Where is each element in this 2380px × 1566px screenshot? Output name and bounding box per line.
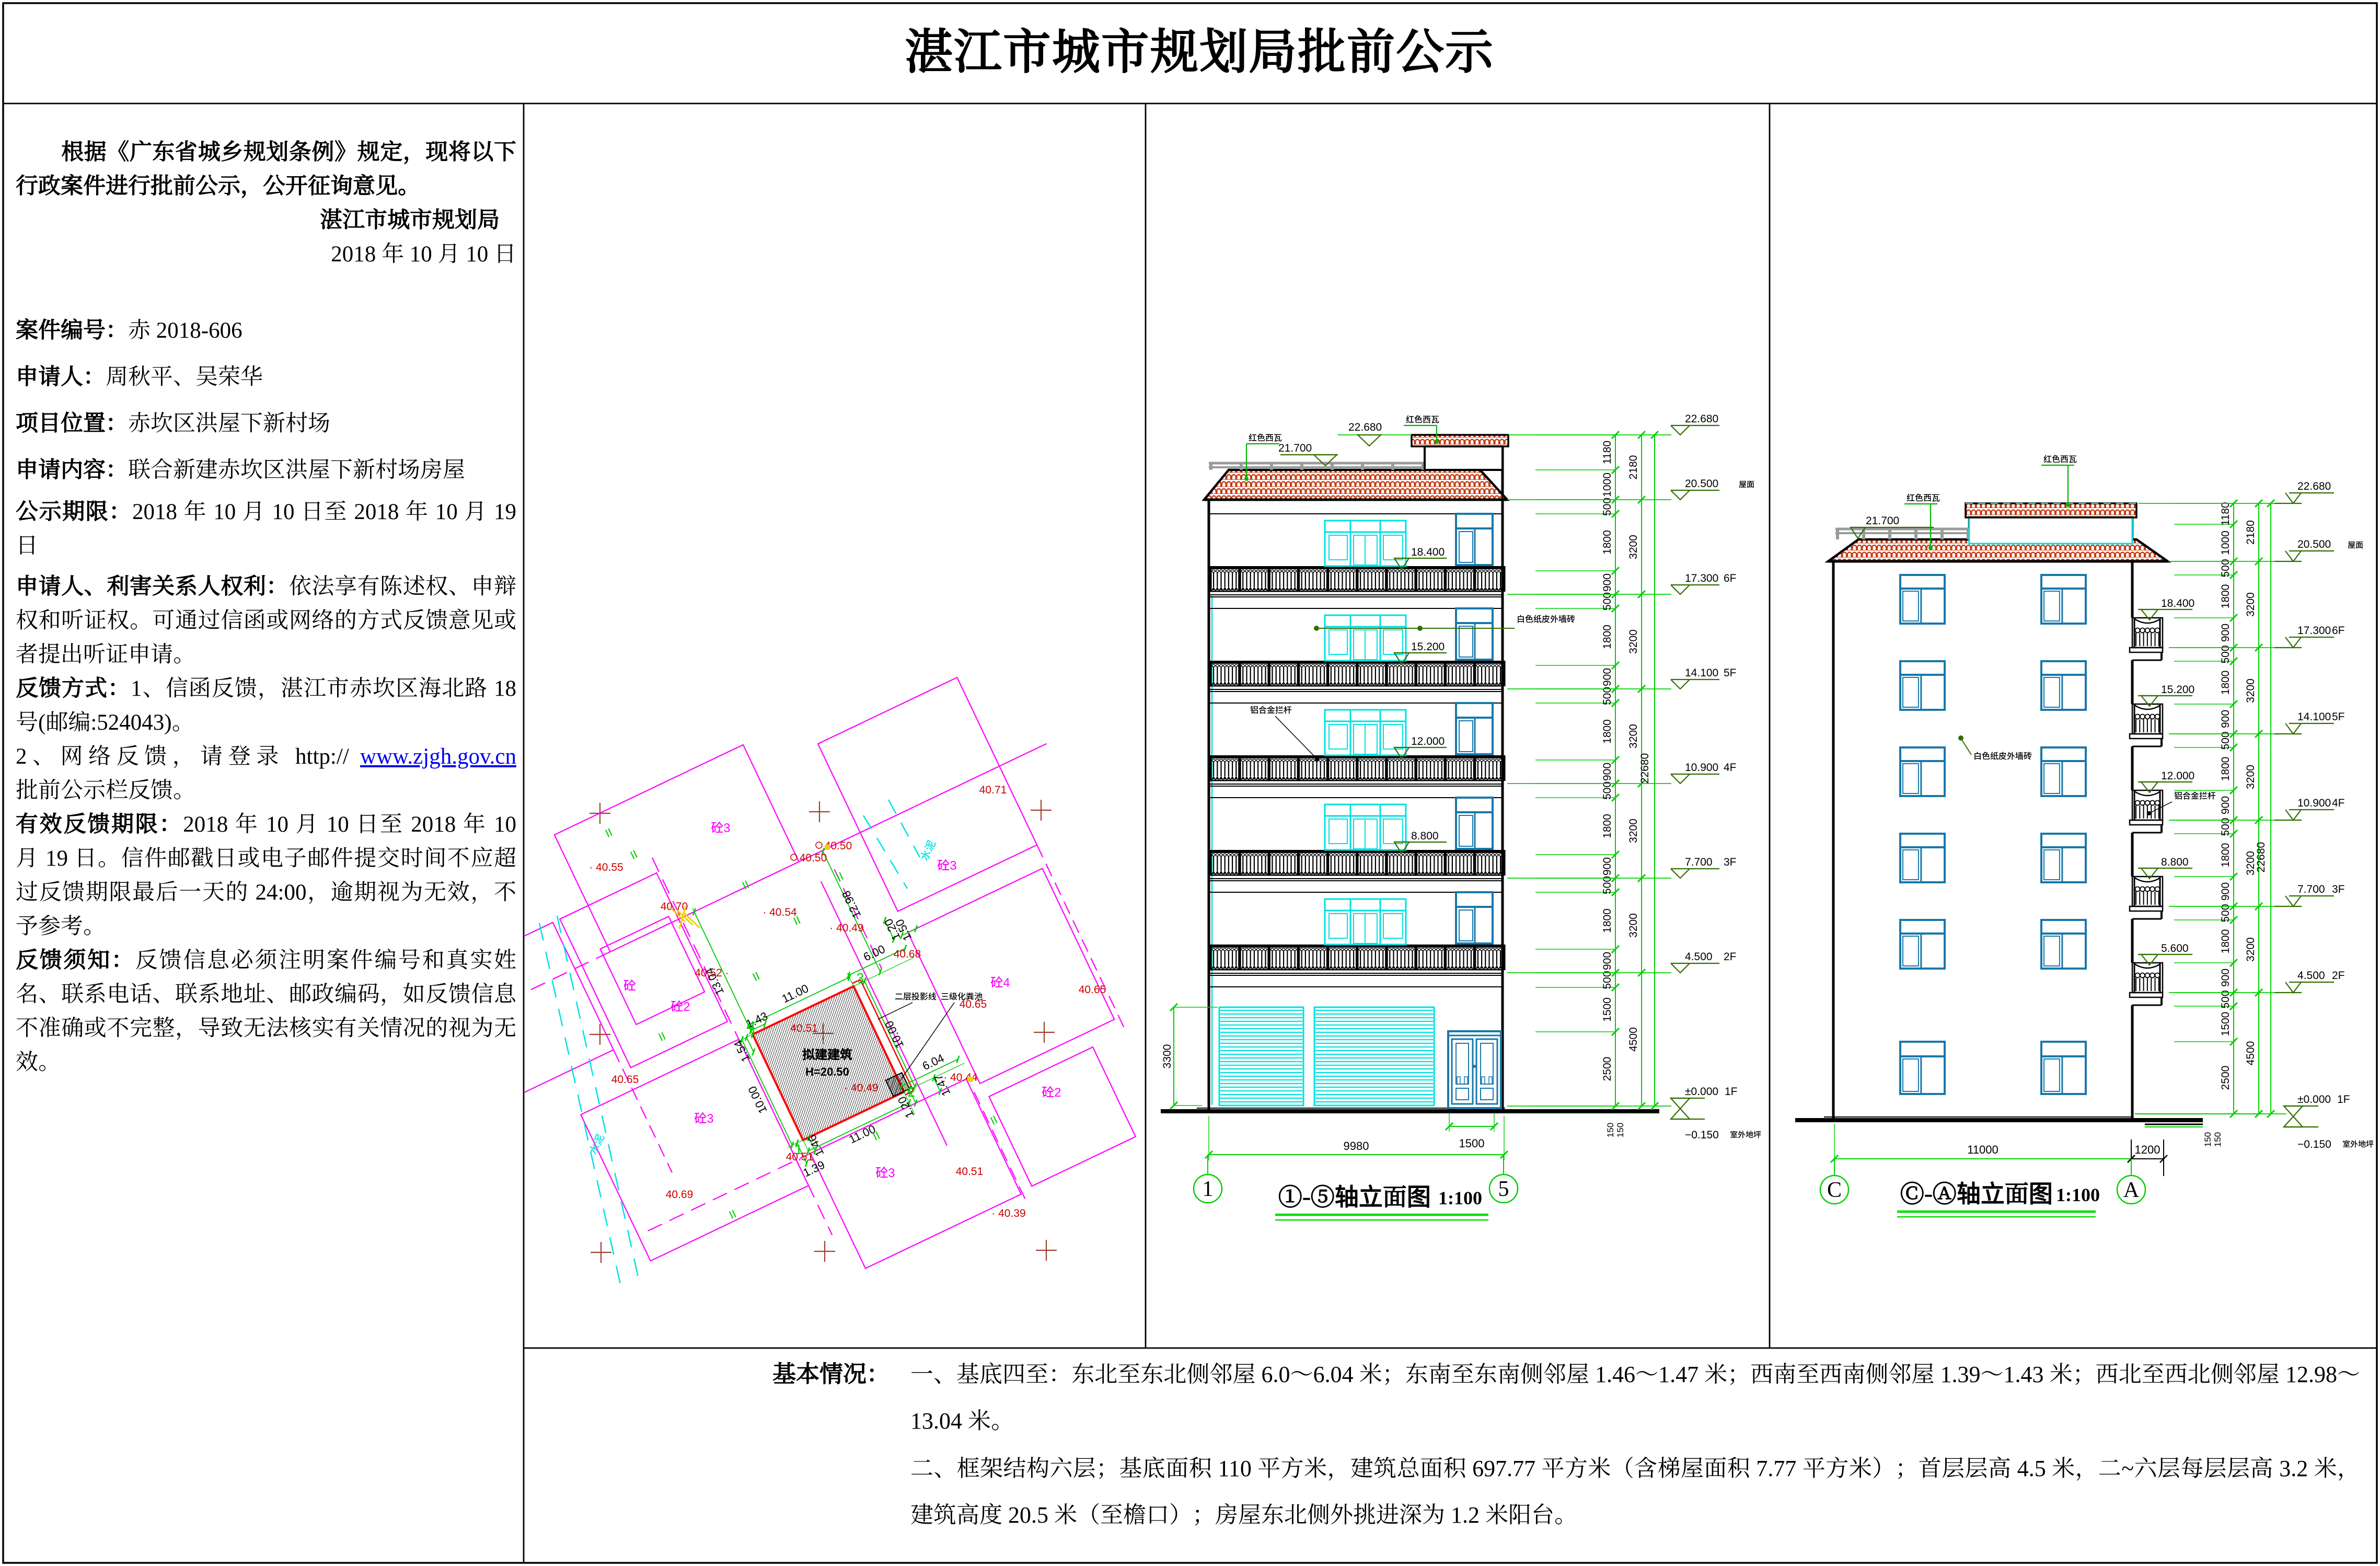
- svg-text:4500: 4500: [2245, 1041, 2257, 1066]
- svg-text:II: II: [834, 869, 846, 884]
- svg-text:II: II: [603, 825, 615, 840]
- svg-text:2180: 2180: [1627, 455, 1639, 480]
- svg-text:3200: 3200: [1627, 629, 1639, 654]
- svg-text:40.51: 40.51: [786, 1151, 814, 1163]
- svg-text:C: C: [1827, 1178, 1842, 1202]
- svg-text:6F: 6F: [2332, 625, 2345, 637]
- svg-text:1500: 1500: [2220, 1012, 2232, 1037]
- svg-text:40.51 ·: 40.51 ·: [790, 1022, 824, 1034]
- svg-text:20.500: 20.500: [2297, 538, 2331, 550]
- svg-text:4F: 4F: [1724, 762, 1737, 774]
- svg-text:22680: 22680: [2255, 842, 2267, 872]
- svg-text:· 40.55: · 40.55: [589, 861, 623, 873]
- svg-text:2500: 2500: [2220, 1066, 2232, 1090]
- svg-text:4.500: 4.500: [2297, 970, 2325, 982]
- svg-text:±0.000: ±0.000: [1685, 1086, 1718, 1098]
- svg-text:1800: 1800: [2220, 671, 2232, 695]
- svg-text:900: 900: [1601, 573, 1613, 592]
- svg-text:二层投影线: 二层投影线: [895, 989, 937, 1002]
- svg-text:3200: 3200: [2245, 678, 2257, 703]
- svg-text:4: 4: [748, 1018, 755, 1034]
- svg-text:20.500: 20.500: [1685, 478, 1718, 490]
- svg-text:1:100: 1:100: [1438, 1188, 1482, 1208]
- svg-text:150: 150: [2213, 1132, 2223, 1147]
- svg-text:1800: 1800: [1601, 814, 1613, 838]
- svg-text:17.300: 17.300: [1685, 572, 1718, 584]
- svg-text:砼3: 砼3: [711, 817, 730, 836]
- svg-text:II: II: [791, 913, 803, 928]
- svg-text:白色纸皮外墙砖: 白色纸皮外墙砖: [1517, 612, 1575, 625]
- svg-text:砼2: 砼2: [671, 996, 690, 1015]
- svg-text:水泥: 水泥: [916, 837, 939, 863]
- svg-text:6F: 6F: [1724, 572, 1737, 584]
- svg-text:· 40.49: · 40.49: [844, 1082, 878, 1094]
- svg-text:21.700: 21.700: [1866, 515, 1899, 527]
- svg-text:红色西瓦: 红色西瓦: [1406, 412, 1439, 425]
- svg-text:3200: 3200: [2245, 592, 2257, 617]
- svg-text:1000: 1000: [2220, 531, 2232, 555]
- svg-text:室外地坪: 室外地坪: [1730, 1129, 1761, 1140]
- svg-text:150: 150: [1605, 1123, 1615, 1137]
- svg-text:屋面: 屋面: [1739, 479, 1754, 490]
- svg-text:12.000: 12.000: [2161, 770, 2194, 782]
- svg-text:900: 900: [1601, 668, 1613, 686]
- svg-text:−0.150: −0.150: [2297, 1138, 2331, 1150]
- svg-text:15.200: 15.200: [2161, 684, 2194, 696]
- svg-text:900: 900: [1601, 857, 1613, 876]
- svg-text:2F: 2F: [2332, 970, 2345, 982]
- svg-text:150: 150: [2203, 1132, 2213, 1147]
- svg-text:3200: 3200: [1627, 535, 1639, 559]
- svg-text:H=20.50: H=20.50: [805, 1063, 849, 1079]
- svg-text:1500: 1500: [1459, 1137, 1485, 1150]
- svg-text:500: 500: [1601, 971, 1613, 989]
- svg-text:1800: 1800: [1601, 908, 1613, 933]
- svg-text:900: 900: [2220, 796, 2232, 814]
- svg-text:18.400: 18.400: [1411, 546, 1445, 558]
- svg-text:1F: 1F: [2337, 1093, 2350, 1106]
- svg-text:15.200: 15.200: [1411, 641, 1445, 653]
- svg-text:1800: 1800: [2220, 757, 2232, 781]
- svg-text:5.600: 5.600: [2161, 942, 2189, 954]
- svg-text:· 40.39: · 40.39: [991, 1207, 1025, 1219]
- svg-text:2F: 2F: [1724, 951, 1737, 963]
- svg-text:7.700: 7.700: [1685, 856, 1713, 868]
- svg-text:22.680: 22.680: [2297, 480, 2331, 492]
- svg-text:拟建建筑: 拟建建筑: [802, 1044, 853, 1063]
- svg-text:40.51: 40.51: [956, 1166, 984, 1178]
- svg-text:40.52 ·: 40.52 ·: [695, 967, 729, 979]
- svg-text:II: II: [750, 969, 762, 984]
- svg-text:14.100: 14.100: [2297, 711, 2331, 723]
- svg-text:8.800: 8.800: [2161, 856, 2189, 868]
- svg-text:40.65: 40.65: [1079, 984, 1106, 996]
- svg-text:3200: 3200: [1627, 819, 1639, 843]
- svg-text:II: II: [656, 1029, 668, 1044]
- svg-text:II: II: [727, 1207, 738, 1222]
- svg-text:900: 900: [1601, 763, 1613, 781]
- svg-text:10.900: 10.900: [2297, 797, 2331, 809]
- svg-text:40.71: 40.71: [979, 784, 1007, 796]
- svg-text:12.000: 12.000: [1411, 735, 1445, 747]
- svg-text:6.04: 6.04: [920, 1051, 946, 1073]
- svg-text:4.500: 4.500: [1685, 951, 1713, 963]
- svg-text:11.00: 11.00: [780, 982, 811, 1006]
- svg-text:1800: 1800: [2220, 929, 2232, 954]
- svg-text:900: 900: [2220, 624, 2232, 642]
- svg-text:500: 500: [1601, 498, 1613, 516]
- svg-text:3200: 3200: [2245, 937, 2257, 962]
- svg-text:3F: 3F: [1724, 856, 1737, 868]
- svg-text:3200: 3200: [1627, 913, 1639, 938]
- svg-text:40.65: 40.65: [960, 998, 987, 1010]
- svg-text:3200: 3200: [1627, 724, 1639, 749]
- svg-text:水泥: 水泥: [585, 1131, 607, 1157]
- svg-text:14.100: 14.100: [1685, 667, 1718, 679]
- svg-text:2500: 2500: [1601, 1057, 1613, 1081]
- svg-text:砼3: 砼3: [694, 1108, 713, 1126]
- svg-text:II: II: [628, 847, 640, 862]
- svg-text:1800: 1800: [2220, 843, 2232, 868]
- svg-text:8.800: 8.800: [1411, 830, 1439, 842]
- svg-text:1800: 1800: [1601, 719, 1613, 744]
- svg-text:1F: 1F: [1725, 1086, 1738, 1098]
- svg-text:22.680: 22.680: [1685, 413, 1718, 425]
- svg-text:砼3: 砼3: [937, 855, 956, 873]
- svg-text:1800: 1800: [1601, 530, 1613, 555]
- svg-text:900: 900: [2220, 710, 2232, 728]
- svg-text:4500: 4500: [1627, 1027, 1639, 1052]
- svg-text:· 40.49: · 40.49: [829, 922, 863, 934]
- svg-text:5: 5: [1498, 1177, 1509, 1201]
- svg-text:Ⓒ-Ⓐ轴立面图: Ⓒ-Ⓐ轴立面图: [1900, 1175, 2053, 1210]
- svg-text:40.69: 40.69: [666, 1189, 694, 1201]
- svg-text:900: 900: [1601, 952, 1613, 970]
- svg-text:砼: 砼: [623, 975, 636, 994]
- svg-text:10.900: 10.900: [1685, 762, 1718, 774]
- svg-text:红色西瓦: 红色西瓦: [1249, 431, 1282, 443]
- svg-text:A: A: [2123, 1178, 2140, 1202]
- svg-text:22.680: 22.680: [1348, 421, 1382, 433]
- svg-text:40.50: 40.50: [800, 852, 827, 864]
- svg-text:1000: 1000: [1601, 473, 1613, 497]
- svg-text:500: 500: [1601, 876, 1613, 894]
- svg-text:500: 500: [1601, 592, 1613, 611]
- svg-text:3: 3: [857, 970, 864, 986]
- svg-text:500: 500: [1601, 781, 1613, 800]
- svg-text:17.300: 17.300: [2297, 625, 2331, 637]
- svg-text:3200: 3200: [2245, 765, 2257, 789]
- svg-text:9980: 9980: [1344, 1139, 1369, 1153]
- svg-text:1180: 1180: [1601, 441, 1613, 464]
- svg-text:6.00: 6.00: [861, 942, 887, 964]
- svg-text:500: 500: [1601, 687, 1613, 705]
- svg-text:40.68: 40.68: [894, 948, 921, 960]
- svg-text:1800: 1800: [1601, 625, 1613, 649]
- svg-text:2180: 2180: [2245, 520, 2257, 545]
- svg-text:7.700: 7.700: [2297, 883, 2325, 895]
- svg-text:4F: 4F: [2332, 797, 2345, 809]
- svg-text:1:100: 1:100: [2056, 1184, 2100, 1205]
- svg-text:40.65: 40.65: [611, 1074, 639, 1086]
- svg-text:砼2: 砼2: [1042, 1082, 1061, 1100]
- svg-text:1500: 1500: [1601, 997, 1613, 1022]
- svg-text:2: 2: [908, 1084, 915, 1100]
- svg-text:5F: 5F: [1724, 667, 1737, 679]
- svg-text:屋面: 屋面: [2348, 539, 2363, 550]
- svg-text:5F: 5F: [2332, 711, 2345, 723]
- svg-text:白色纸皮外墙砖: 白色纸皮外墙砖: [1973, 749, 2032, 762]
- svg-text:铝合金拦杆: 铝合金拦杆: [1250, 703, 1292, 716]
- svg-text:1800: 1800: [2220, 584, 2232, 609]
- svg-text:II: II: [871, 1129, 882, 1143]
- svg-text:红色西瓦: 红色西瓦: [2043, 452, 2077, 465]
- svg-text:砼4: 砼4: [990, 972, 1010, 991]
- svg-text:砼3: 砼3: [875, 1162, 895, 1181]
- svg-text:红色西瓦: 红色西瓦: [1907, 491, 1940, 503]
- svg-text:3300: 3300: [1161, 1044, 1173, 1069]
- svg-text:−0.150: −0.150: [1685, 1129, 1719, 1141]
- svg-text:12.98: 12.98: [839, 889, 863, 920]
- svg-text:10.00: 10.00: [745, 1084, 769, 1115]
- svg-text:150: 150: [1615, 1123, 1625, 1137]
- svg-text:21.700: 21.700: [1278, 442, 1312, 454]
- svg-text:900: 900: [2220, 882, 2232, 901]
- svg-text:1200: 1200: [2135, 1143, 2161, 1156]
- svg-text:3F: 3F: [2332, 883, 2345, 895]
- svg-text:18.400: 18.400: [2161, 597, 2194, 609]
- svg-text:22680: 22680: [1639, 753, 1651, 784]
- svg-text:①-⑤轴立面图: ①-⑤轴立面图: [1278, 1178, 1431, 1213]
- svg-text:1: 1: [1203, 1177, 1214, 1201]
- svg-text:室外地坪: 室外地坪: [2342, 1138, 2374, 1149]
- svg-text:±0.000: ±0.000: [2297, 1093, 2331, 1106]
- svg-text:11000: 11000: [1967, 1143, 1998, 1156]
- svg-text:900: 900: [2220, 969, 2232, 987]
- svg-text:1180: 1180: [2220, 502, 2232, 525]
